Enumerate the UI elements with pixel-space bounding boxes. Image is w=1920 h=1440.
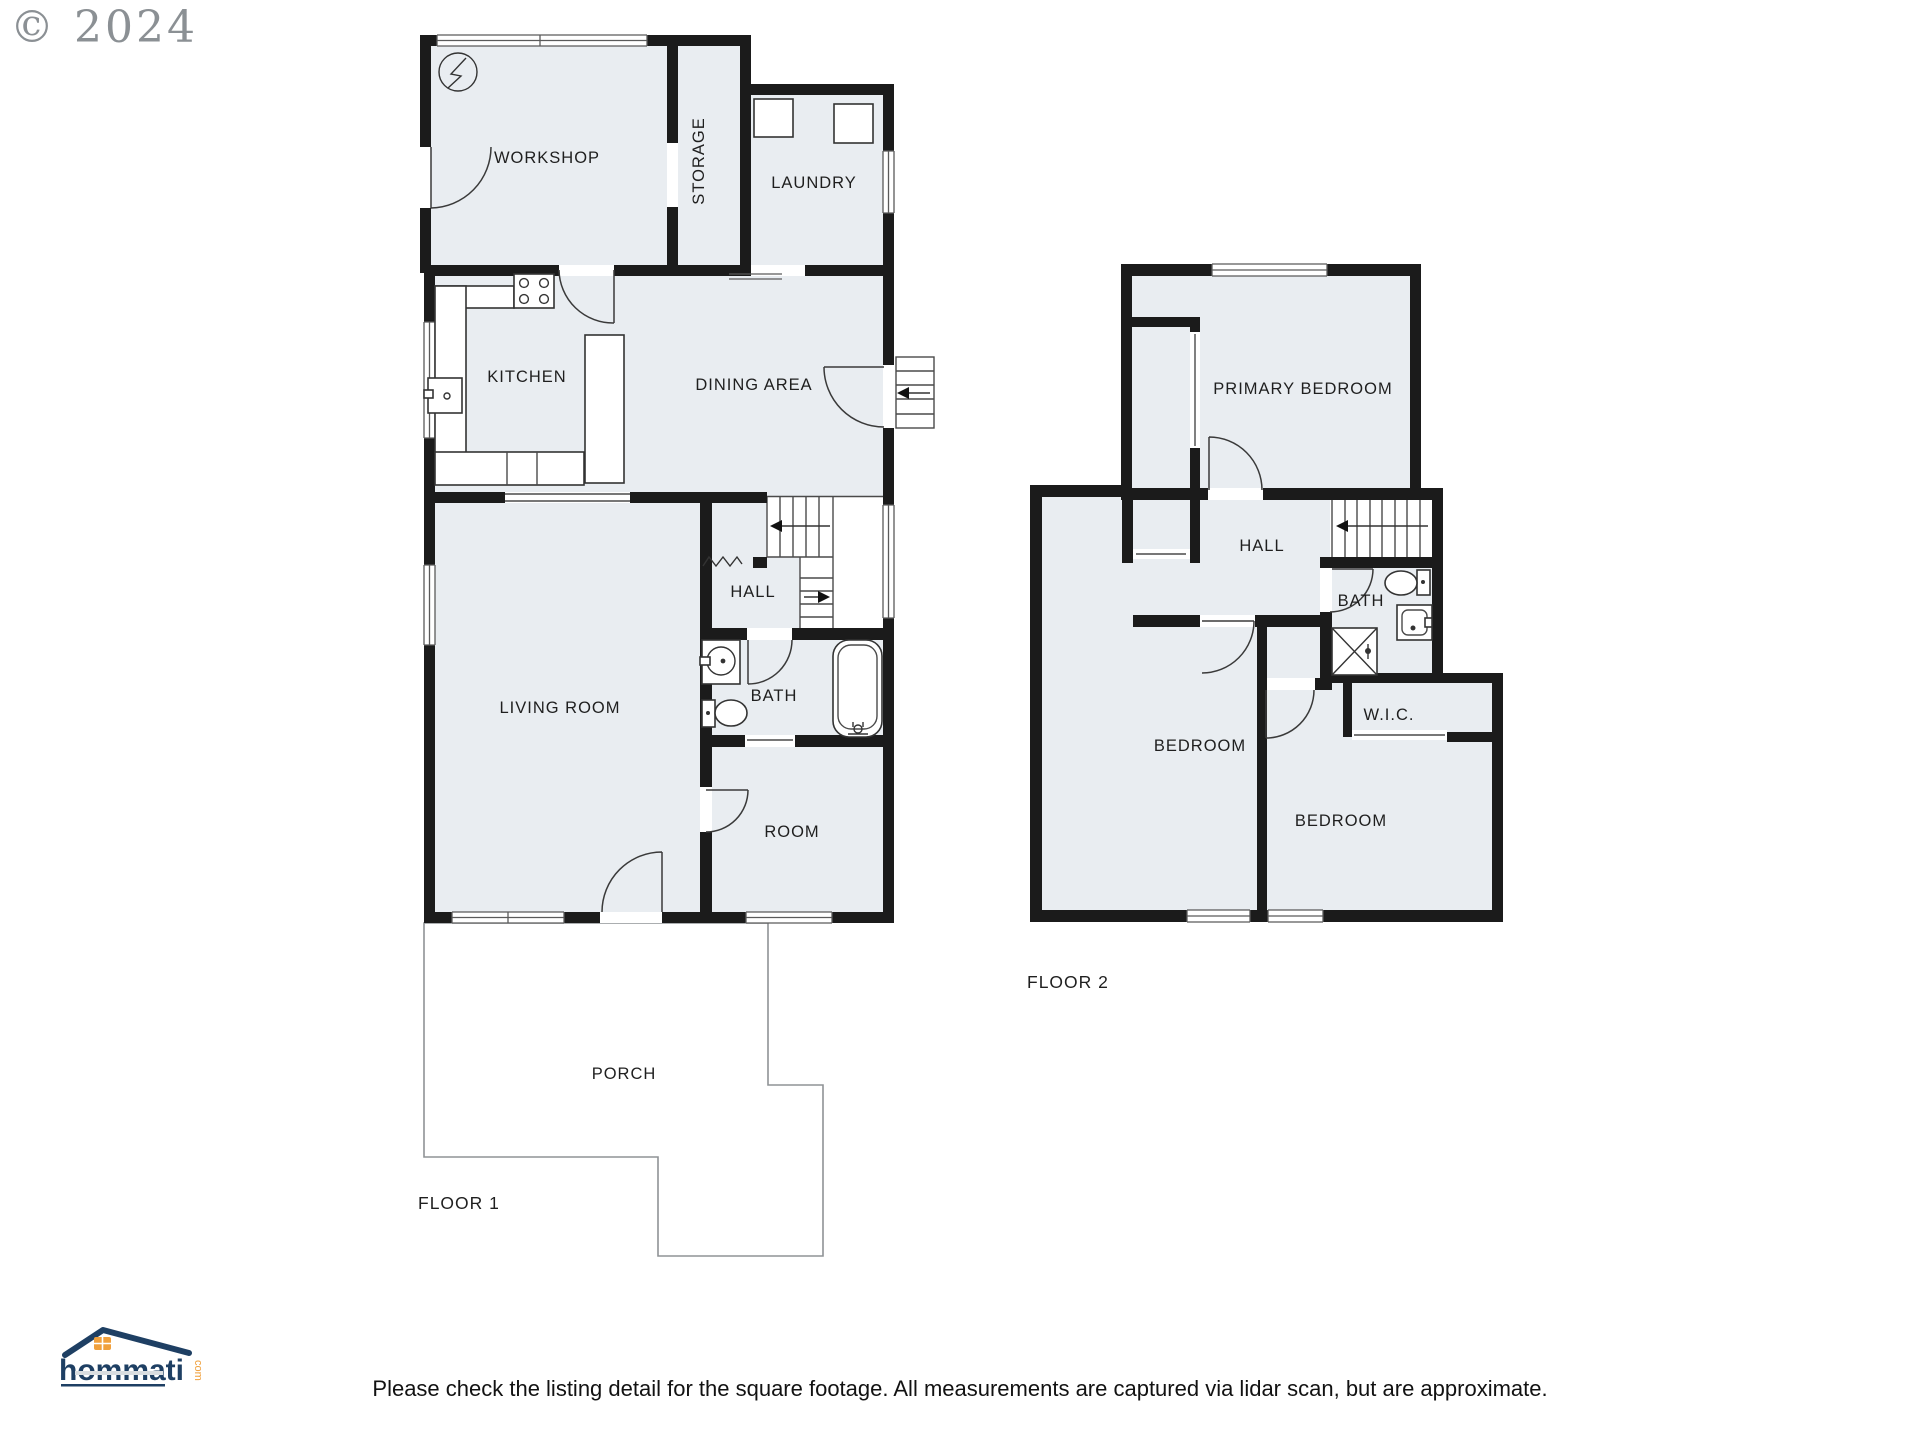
kitchen-counter-left [435, 286, 466, 468]
label-laundry: LAUNDRY [771, 174, 857, 192]
floor1-plan: WORKSHOP STORAGE LAUNDRY KITCHEN DINING … [418, 35, 934, 1256]
floor2-plan: PRIMARY BEDROOM HALL BATH W.I.C. BEDROOM… [1027, 264, 1503, 992]
window [452, 912, 564, 923]
bath2-faucet-icon [1425, 618, 1432, 627]
window [883, 505, 894, 618]
window [883, 151, 894, 213]
logo-roof-icon [65, 1330, 189, 1355]
label-bath-f1: BATH [751, 687, 798, 705]
shower-head-icon [1365, 648, 1371, 654]
bath-faucet-icon [700, 657, 710, 665]
window [1187, 910, 1250, 922]
label-floor2: FLOOR 2 [1027, 972, 1109, 992]
label-workshop: WORKSHOP [494, 149, 600, 167]
label-storage: STORAGE [690, 117, 708, 204]
dryer [834, 104, 873, 143]
label-primary-bedroom: PRIMARY BEDROOM [1213, 380, 1392, 398]
label-porch: PORCH [592, 1065, 657, 1083]
label-room: ROOM [764, 823, 819, 841]
label-hall-f2: HALL [1239, 537, 1284, 555]
stove [514, 274, 554, 308]
toilet-bowl [715, 700, 747, 726]
window [424, 565, 435, 645]
window [1268, 910, 1323, 922]
toilet2-bowl [1385, 571, 1417, 595]
logo-tagline-bar [75, 1371, 163, 1375]
floorplan-page: © 2024 [0, 0, 1920, 1440]
label-dining: DINING AREA [695, 376, 812, 394]
window [1212, 264, 1327, 276]
label-hall-f1: HALL [730, 583, 775, 601]
label-living: LIVING ROOM [499, 699, 620, 717]
label-floor1: FLOOR 1 [418, 1193, 500, 1213]
kitchen-island [585, 335, 624, 483]
window [746, 912, 832, 923]
floor2-stairs [1332, 497, 1432, 557]
washer [754, 99, 793, 137]
dining-exterior-steps [896, 357, 934, 428]
floorplan-drawing: WORKSHOP STORAGE LAUNDRY KITCHEN DINING … [0, 0, 1920, 1440]
disclaimer-text: Please check the listing detail for the … [0, 1376, 1920, 1402]
label-bedroom-left: BEDROOM [1154, 737, 1246, 755]
kitchen-counter-bottom [435, 452, 584, 485]
label-bedroom-right: BEDROOM [1295, 812, 1387, 830]
label-bath-f2: BATH [1338, 592, 1385, 610]
kitchen-sink-faucet-icon [424, 390, 433, 398]
window [437, 35, 647, 46]
label-wic: W.I.C. [1364, 706, 1415, 724]
label-kitchen: KITCHEN [487, 368, 566, 386]
